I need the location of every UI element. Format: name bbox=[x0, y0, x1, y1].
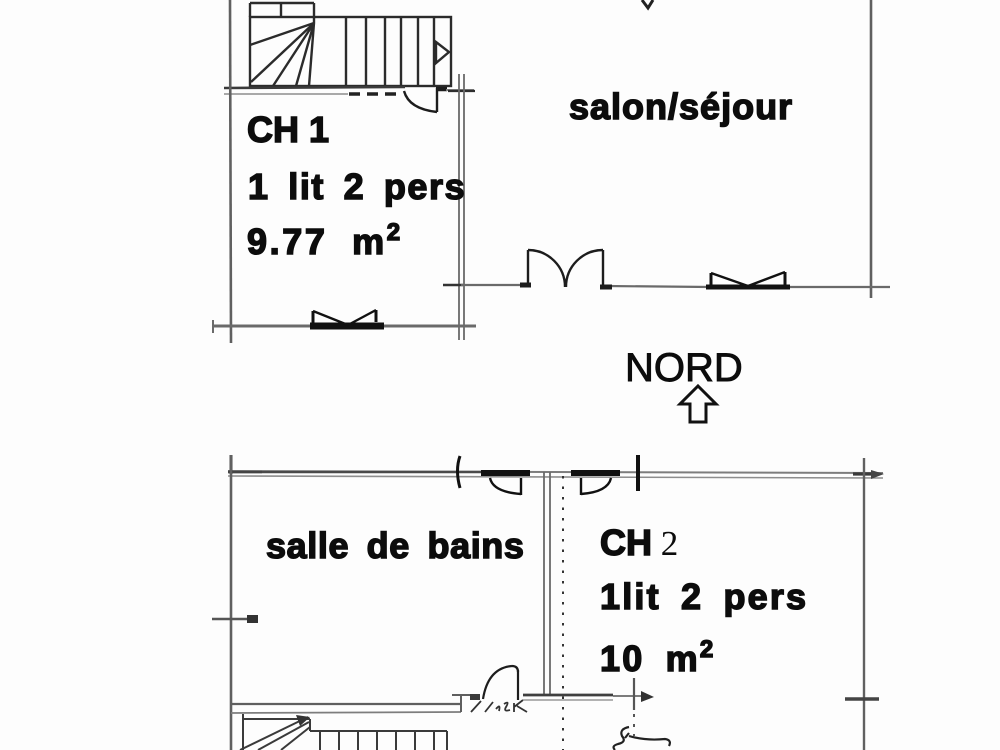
svg-text:salle de bains: salle de bains bbox=[266, 525, 525, 566]
svg-text:1lit 2 pers: 1lit 2 pers bbox=[600, 576, 808, 617]
svg-text:1 lit 2 pers: 1 lit 2 pers bbox=[248, 166, 466, 207]
svg-text:CH 1: CH 1 bbox=[247, 109, 329, 150]
svg-text:CH 2: CH 2 bbox=[600, 522, 678, 563]
svg-text:NORD: NORD bbox=[625, 346, 743, 390]
svg-text:9.77 m2: 9.77 m2 bbox=[247, 219, 403, 262]
svg-text:10 m2: 10 m2 bbox=[600, 636, 715, 679]
svg-text:salon/séjour: salon/séjour bbox=[569, 86, 793, 127]
